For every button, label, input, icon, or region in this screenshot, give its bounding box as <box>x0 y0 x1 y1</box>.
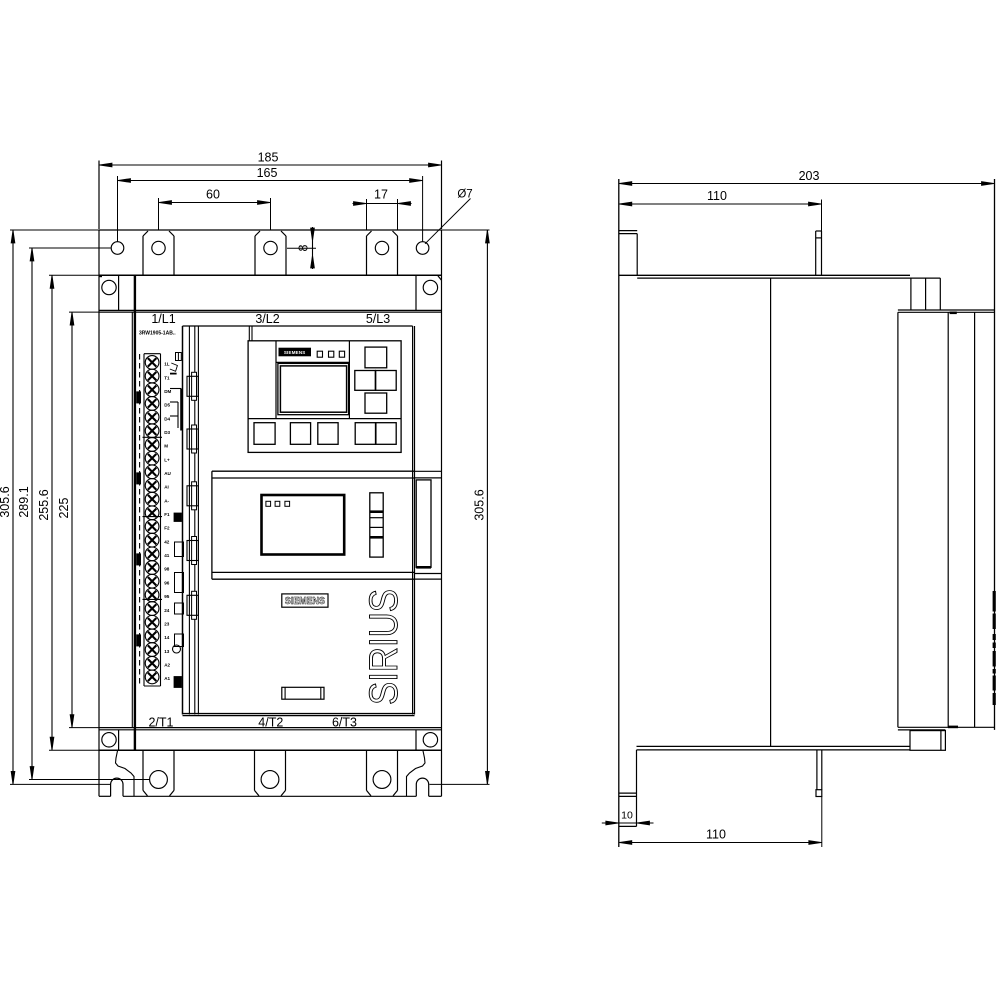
svg-text:95: 95 <box>164 594 170 599</box>
svg-text:D3: D3 <box>164 430 170 435</box>
svg-text:3RW1905-1AB..: 3RW1905-1AB.. <box>139 331 176 337</box>
svg-text:110: 110 <box>706 828 726 842</box>
svg-text:F1: F1 <box>164 512 170 517</box>
svg-text:AI: AI <box>164 485 169 490</box>
svg-text:SIEMENS: SIEMENS <box>285 596 325 607</box>
svg-text:SIRIUS: SIRIUS <box>362 589 406 705</box>
svg-text:17: 17 <box>374 188 388 202</box>
svg-text:24: 24 <box>164 608 170 613</box>
svg-text:T1: T1 <box>164 375 170 380</box>
svg-text:DM: DM <box>164 389 171 394</box>
svg-text:165: 165 <box>257 166 278 180</box>
svg-text:SIEMENS: SIEMENS <box>284 350 306 355</box>
svg-text:41: 41 <box>164 553 170 558</box>
svg-text:3/L2: 3/L2 <box>255 312 279 326</box>
svg-text:14: 14 <box>164 635 170 640</box>
svg-text:L+: L+ <box>164 457 170 462</box>
svg-text:185: 185 <box>258 151 279 165</box>
svg-text:1L: 1L <box>164 362 170 367</box>
svg-text:M: M <box>164 444 168 449</box>
svg-text:A2: A2 <box>164 662 170 667</box>
svg-text:10: 10 <box>621 810 633 822</box>
svg-text:23: 23 <box>164 621 170 626</box>
svg-text:AU: AU <box>164 471 171 476</box>
svg-text:F2: F2 <box>164 526 170 531</box>
svg-text:305.6: 305.6 <box>473 489 487 520</box>
svg-text:5/L3: 5/L3 <box>366 312 390 326</box>
svg-text:4/T2: 4/T2 <box>258 716 283 730</box>
svg-text:A1: A1 <box>164 676 170 681</box>
svg-text:Ø7: Ø7 <box>457 188 472 200</box>
svg-text:305.6: 305.6 <box>0 486 12 517</box>
svg-text:96: 96 <box>164 580 170 585</box>
svg-text:13: 13 <box>164 649 170 654</box>
svg-text:D5: D5 <box>164 403 170 408</box>
svg-text:6/T3: 6/T3 <box>332 716 357 730</box>
svg-text:2/T1: 2/T1 <box>148 716 173 730</box>
svg-text:60: 60 <box>206 188 220 202</box>
svg-text:A-: A- <box>164 498 169 503</box>
svg-text:225: 225 <box>57 498 71 519</box>
svg-text:203: 203 <box>799 169 820 183</box>
svg-text:42: 42 <box>164 539 170 544</box>
svg-text:D4: D4 <box>164 416 170 421</box>
svg-text:1/L1: 1/L1 <box>151 312 175 326</box>
svg-text:110: 110 <box>707 189 727 203</box>
svg-text:289.1: 289.1 <box>17 486 31 517</box>
svg-text:255.6: 255.6 <box>37 489 51 520</box>
svg-text:98: 98 <box>164 567 170 572</box>
